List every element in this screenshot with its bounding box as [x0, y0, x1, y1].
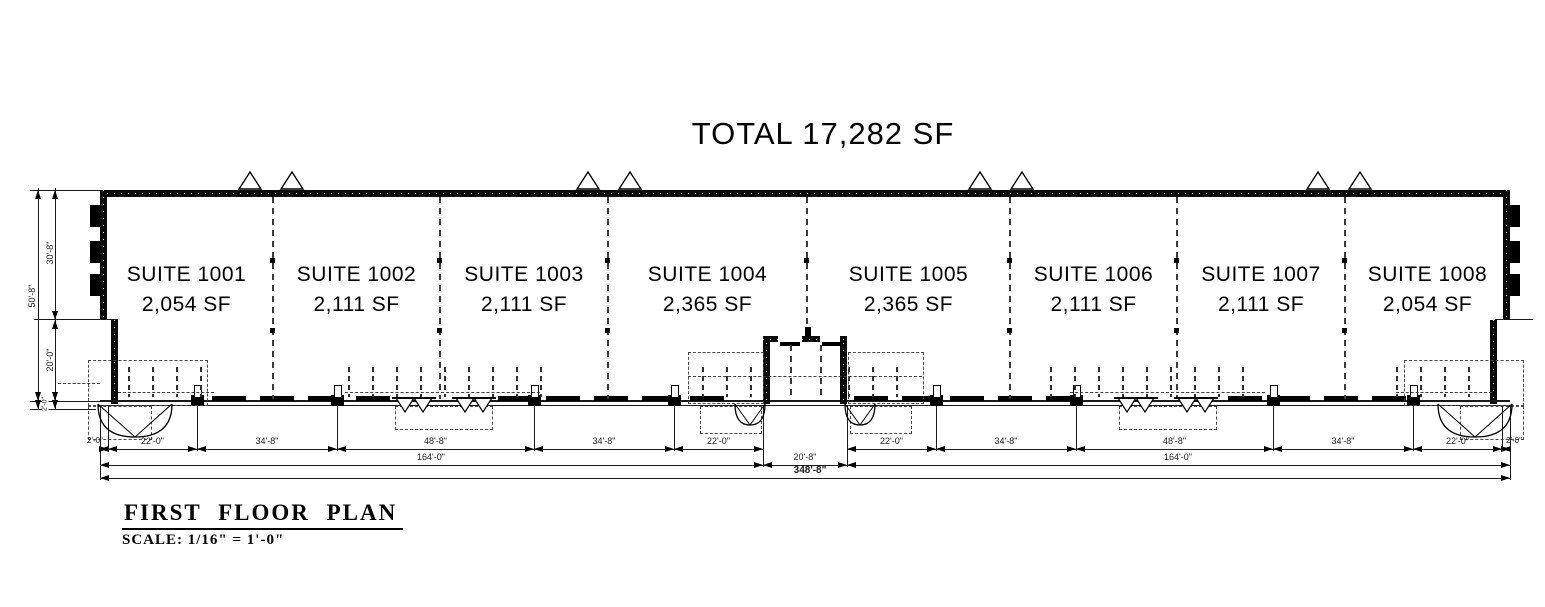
suite-cell: SUITE 10082,054 SF [1345, 260, 1510, 324]
extension-line [1510, 406, 1511, 480]
suite-name: SUITE 1005 [849, 260, 968, 290]
dimension-arrow [1067, 446, 1076, 452]
suite-name: SUITE 1007 [1201, 260, 1320, 290]
storefront-glazing [1372, 396, 1406, 401]
dimension-line [1413, 449, 1502, 450]
dimension-arrow [1273, 446, 1282, 452]
floor-plan-drawing: TOTAL 17,282 SF SUITE 10012,054 SFSUITE … [0, 0, 1545, 607]
dimension-line [337, 449, 534, 450]
suite-name: SUITE 1004 [648, 260, 767, 290]
dimension-arrow [100, 462, 109, 468]
demising-block [1342, 328, 1347, 333]
suite-area: 2,365 SF [663, 290, 752, 320]
dimension-arrow [525, 446, 534, 452]
dimension-arrow [838, 462, 847, 468]
dimension-arrow [1076, 446, 1085, 452]
dimension-line-left-inner [55, 188, 56, 409]
dimension-arrow [197, 446, 206, 452]
extension-line [763, 406, 764, 467]
dimension-label: 22'-0" [141, 436, 164, 446]
pilaster-east [1510, 274, 1520, 296]
canopy-outline [395, 406, 493, 430]
extension-line [30, 409, 96, 410]
vestibule-path-line [820, 345, 822, 400]
dimension-line [674, 449, 763, 450]
dimension-label: 22'-0" [707, 436, 730, 446]
vestibule-door-leaf [822, 342, 841, 346]
vestibule-header-2 [802, 336, 820, 342]
dimension-label: 30'-8" [45, 240, 55, 267]
dimension-arrow [52, 190, 58, 199]
dimension-arrow [1404, 446, 1413, 452]
storefront-mullion [933, 385, 941, 398]
dimension-arrow [188, 446, 197, 452]
dimension-label: 34'-8" [256, 436, 279, 446]
vestibule-path-line [790, 345, 792, 400]
pilaster-west [90, 241, 100, 263]
suite-cell: SUITE 10022,111 SF [273, 260, 440, 324]
extension-line [100, 406, 101, 480]
plan-scale: SCALE: 1/16" = 1'-0" [122, 532, 403, 549]
dimension-arrow [936, 446, 945, 452]
dimension-arrow [847, 446, 856, 452]
storefront-glazing [212, 396, 246, 401]
vestibule-wall-east [840, 336, 847, 404]
awning-tick [1050, 367, 1052, 397]
storefront-glazing [950, 396, 984, 401]
dimension-line [534, 449, 674, 450]
demising-block [437, 328, 442, 333]
canopy-outline [1404, 360, 1524, 406]
storefront-glazing [1276, 396, 1310, 401]
dimension-arrow [35, 190, 41, 199]
extension-line [1502, 406, 1503, 451]
extension-line [674, 406, 675, 451]
dimension-arrow [674, 446, 683, 452]
suite-area: 2,111 SF [1218, 290, 1304, 320]
pilaster-west [90, 274, 100, 296]
dimension-label: 48'-8" [424, 436, 447, 446]
dimension-line [847, 465, 1510, 466]
dimension-arrow [52, 311, 58, 320]
dimension-line-left-outer [38, 188, 39, 409]
dimension-arrow [927, 446, 936, 452]
extension-line [1273, 406, 1274, 451]
dimension-arrow [1264, 446, 1273, 452]
dimension-line [847, 449, 936, 450]
dimension-label: 50'-8" [27, 283, 37, 310]
extension-line [534, 406, 535, 451]
storefront-glazing [998, 396, 1032, 401]
dimension-arrow [1413, 446, 1422, 452]
dimension-arrow [108, 446, 117, 452]
dimension-label: 2'-0" [42, 395, 49, 413]
extension-line [1413, 406, 1414, 451]
suite-area: 2,054 SF [142, 290, 231, 320]
storefront-glazing [260, 396, 294, 401]
dimension-arrow [665, 446, 674, 452]
extension-line [1076, 406, 1077, 451]
canopy-dash-line [345, 392, 540, 393]
suite-cell: SUITE 10042,365 SF [608, 260, 807, 324]
dimension-arrow [534, 446, 543, 452]
suite-name: SUITE 1003 [464, 260, 583, 290]
storefront-mullion [334, 385, 342, 398]
dimension-label: 20'-0" [45, 347, 55, 374]
extension-line [197, 406, 198, 451]
storefront-mullion [1270, 385, 1278, 398]
dimension-label: 34'-8" [995, 436, 1018, 446]
storefront-glazing [1324, 396, 1358, 401]
canopy-dash-line [118, 392, 214, 393]
pilaster-east [1510, 241, 1520, 263]
pilaster-west [90, 205, 100, 227]
suite-area: 2,111 SF [481, 290, 567, 320]
suite-area: 2,111 SF [313, 290, 399, 320]
canopy-outline [88, 360, 208, 406]
dimension-label: 34'-8" [593, 436, 616, 446]
dimension-arrow [328, 446, 337, 452]
extension-line [108, 406, 109, 451]
suite-area: 2,111 SF [1050, 290, 1136, 320]
vestibule-marker [805, 327, 811, 336]
dimension-arrow [754, 462, 763, 468]
suite-name: SUITE 1002 [297, 260, 416, 290]
dimension-line [936, 449, 1076, 450]
extension-line [34, 319, 118, 320]
storefront-mullion [671, 385, 679, 398]
dimension-arrow [337, 446, 346, 452]
suite-cell: SUITE 10052,365 SF [807, 260, 1010, 324]
canopy-outline [688, 352, 764, 404]
dimension-arrow [1501, 462, 1510, 468]
dimension-line [108, 449, 197, 450]
dimension-label: 22'-0" [1446, 436, 1469, 446]
dimension-label: 34'-8" [1332, 436, 1355, 446]
dimension-arrow [847, 462, 856, 468]
canopy-dash-line [1396, 392, 1492, 393]
vestibule-header-3 [843, 336, 847, 342]
demising-block [1007, 328, 1012, 333]
canopy-outline [848, 352, 924, 404]
canopy-outline [850, 406, 912, 434]
pilaster-east [1510, 205, 1520, 227]
storefront-glazing [1228, 396, 1262, 401]
storefront-glazing [594, 396, 628, 401]
canopy-outline [1460, 406, 1524, 440]
dimension-line [1273, 449, 1413, 450]
dimension-label: 20'-8" [794, 452, 817, 462]
vestibule-wall-west [763, 336, 770, 404]
dimension-arrow [35, 400, 41, 409]
canopy-dash-line [688, 376, 922, 377]
plan-title: FIRST FLOOR PLAN [122, 500, 403, 530]
canopy-dash-line [1070, 392, 1265, 393]
extension-line [936, 406, 937, 451]
suite-area: 2,054 SF [1383, 290, 1472, 320]
suite-name: SUITE 1001 [127, 260, 246, 290]
storefront-glazing [498, 396, 532, 401]
demising-block [270, 328, 275, 333]
dimension-arrow [1501, 475, 1510, 481]
canopy-outline [88, 406, 152, 440]
title-block: FIRST FLOOR PLAN SCALE: 1/16" = 1'-0" [122, 500, 403, 549]
storefront-glazing [546, 396, 580, 401]
storefront-line-inner [100, 405, 1510, 406]
vestibule-header-1 [763, 336, 778, 342]
suite-name: SUITE 1006 [1034, 260, 1153, 290]
dimension-label: 164'-0" [1164, 452, 1192, 462]
dimension-line [100, 478, 1510, 479]
awning-tick [540, 367, 542, 397]
canopy-dash-line [58, 383, 100, 384]
dimension-arrow [52, 400, 58, 409]
dimension-arrow [100, 475, 109, 481]
suite-cell: SUITE 10032,111 SF [440, 260, 608, 324]
dimension-line [1076, 449, 1273, 450]
dimension-arrow [52, 320, 58, 329]
suite-cell: SUITE 10012,054 SF [100, 260, 273, 324]
dimension-label: 348'-8" [794, 465, 827, 476]
demising-block [1174, 328, 1179, 333]
dimension-label: 164'-0" [417, 452, 445, 462]
canopy-outline [1119, 406, 1217, 430]
dimension-arrow [754, 446, 763, 452]
exterior-wall-north [100, 190, 1510, 197]
dimension-label: 2'-0" [1506, 436, 1522, 445]
suite-name: SUITE 1008 [1368, 260, 1487, 290]
suite-area: 2,365 SF [864, 290, 953, 320]
dimension-arrow [763, 462, 772, 468]
dimension-line [197, 449, 337, 450]
dimension-line [100, 465, 763, 466]
extension-line [847, 406, 848, 467]
canopy-outline [700, 406, 762, 434]
extension-line [337, 406, 338, 451]
dimension-label: 22'-0" [880, 436, 903, 446]
dimension-label: 48'-8" [1163, 436, 1186, 446]
demising-block [605, 328, 610, 333]
suite-cell: SUITE 10062,111 SF [1010, 260, 1177, 324]
suite-cell: SUITE 10072,111 SF [1177, 260, 1345, 324]
